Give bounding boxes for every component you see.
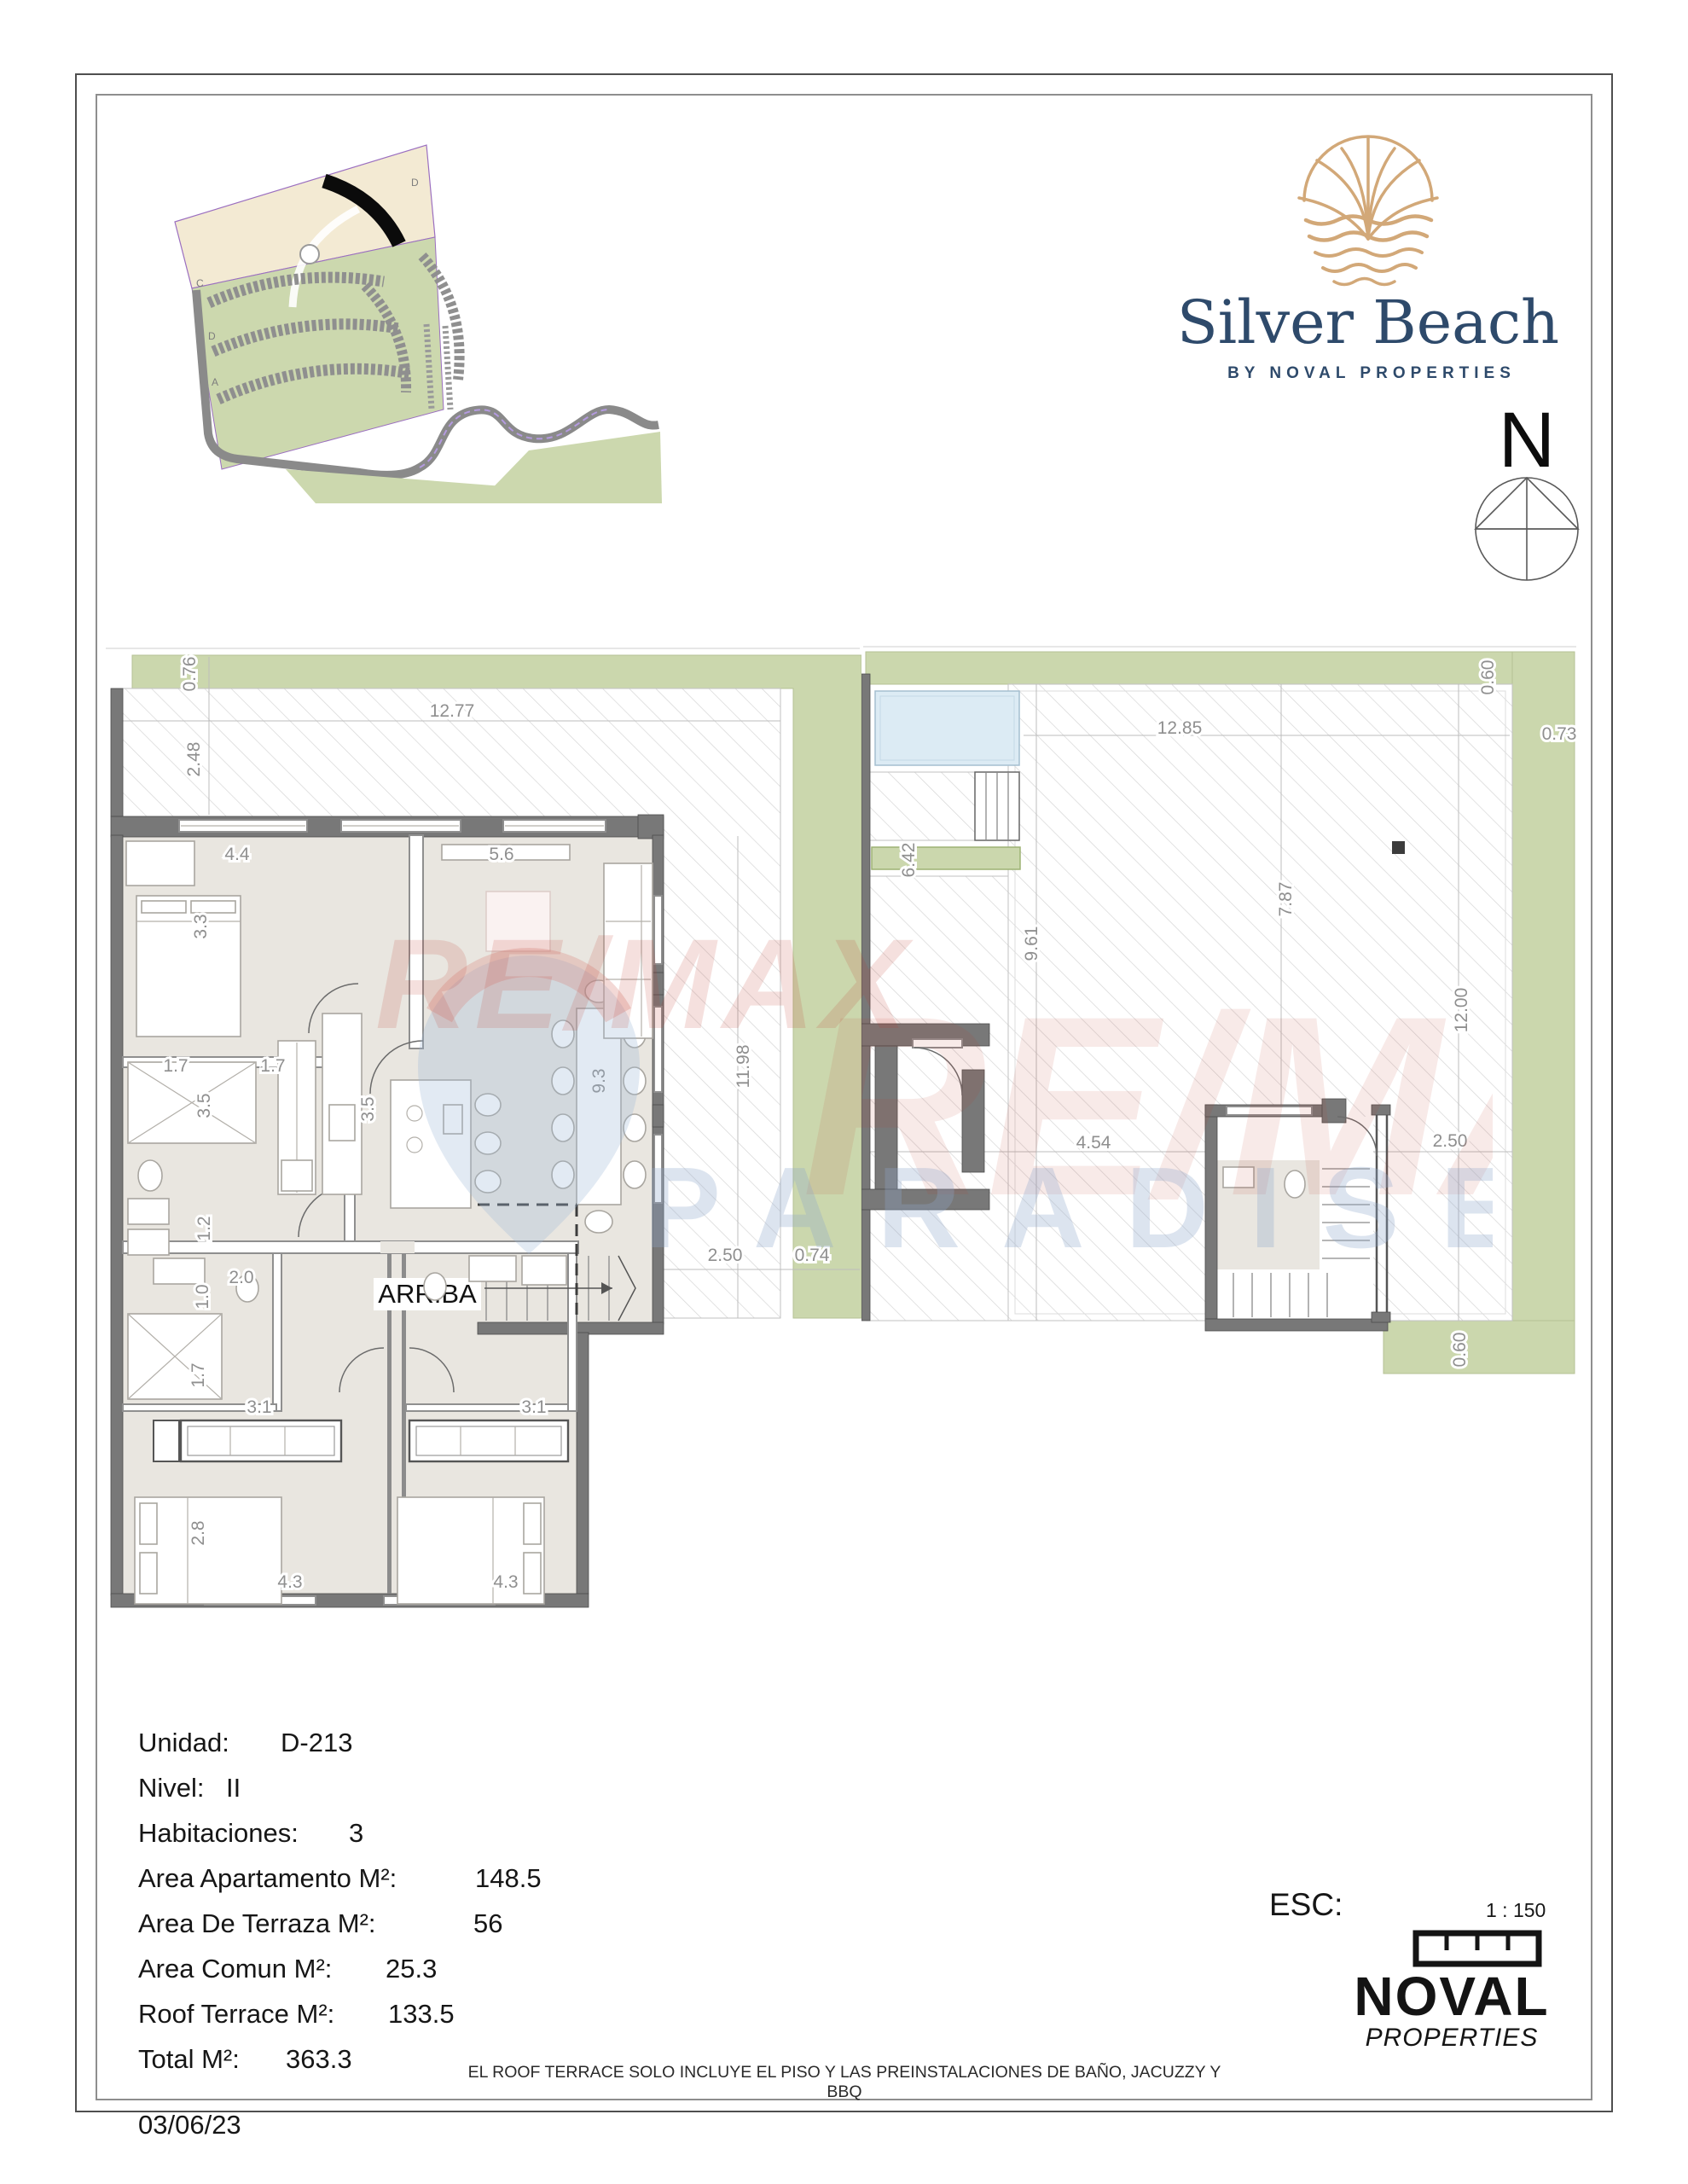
dim-12: 1.2 [194,1216,214,1240]
toilet-icon [138,1160,162,1191]
map-roundabout [300,245,319,264]
dim-43b: 4.3 [493,1572,518,1592]
dim-787: 7.87 [1276,882,1296,917]
toilet-icon [1285,1170,1305,1198]
kitchen-sink-icon [329,1105,355,1141]
unit-value: 148.5 [475,1863,542,1893]
north-arrow: N [1437,397,1616,593]
dim-060-bottom: 0.60 [1450,1333,1470,1368]
dim-17b: 1.7 [260,1056,285,1076]
dim-1198: 11.98 [734,1045,753,1089]
map-label-d-top: D [411,177,419,189]
pillow-icon [524,1553,541,1594]
dim-250r: 2.50 [1433,1131,1468,1151]
unit-label: Area De Terraza M²: [138,1901,473,1946]
coffee-table [486,892,550,951]
unit-label: Area Comun M²: [138,1946,386,1991]
unit-row: Unidad:D-213 [138,1720,542,1765]
brand-tagline: BY NOVAL PROPERTIES [1227,364,1516,382]
dim-073: 0.73 [1542,724,1577,744]
noval-wordmark: NOVAL [1354,1966,1549,2027]
dim-31a: 3.1 [247,1397,271,1417]
sink-icon [154,1258,205,1284]
bed [397,1497,544,1604]
sink-icon [128,1199,169,1224]
dim-10: 1.0 [193,1284,212,1309]
dim-454: 4.54 [1076,1133,1111,1153]
ruler-icon [1416,1933,1539,1964]
unit-label: Total M²: [138,2036,286,2082]
unit-value: II [226,1773,241,1803]
unit-value: D-213 [281,1728,352,1757]
dim-93: 9.3 [589,1068,609,1093]
floor-plan-sheet: { "brand": {"name": "Silver Beach", "tag… [0,0,1688,2184]
dim-20: 2.0 [229,1268,253,1287]
properties-wordmark: PROPERTIES [1366,2024,1539,2052]
pillow-icon [524,1503,541,1544]
unit-row: Area De Terraza M²:56 [138,1901,542,1946]
dim-35b: 3.5 [358,1096,378,1121]
sink-icon [469,1256,516,1281]
planter [872,847,1020,869]
dim-642: 6.42 [899,843,919,878]
unit-row: Nivel:II [138,1765,542,1810]
dim-33: 3.3 [191,914,211,938]
unit-row: Habitaciones:3 [138,1810,542,1856]
hatched-roof-floor [867,684,1512,1321]
dim-44: 4.4 [224,845,250,864]
dim-250: 2.50 [708,1246,743,1265]
unit-value: 133.5 [388,1999,455,2029]
unit-value: 25.3 [386,1954,437,1984]
unit-label: Unidad: [138,1720,281,1765]
unit-row: Roof Terrace M²:133.5 [138,1991,542,2036]
apartment-floor-plan: ARRIBA 0.76 12.77 2.48 4.4 5.6 3.3 [102,640,861,1612]
dim-28: 2.8 [189,1520,208,1545]
map-green-blob-right [478,432,662,503]
sofa [604,863,653,1038]
dim-31b: 3.1 [521,1397,546,1417]
palm-waves-icon [1299,136,1437,285]
dim-17a: 1.7 [163,1056,188,1076]
unit-label: Habitaciones: [138,1810,349,1856]
dim-1285: 12.85 [1157,718,1203,738]
roof-column-marker [1392,841,1405,854]
scale-value: 1 : 150 [1486,1899,1546,1922]
pillow-icon [140,1503,157,1544]
bed [136,896,241,1037]
unit-label: Roof Terrace M²: [138,1991,388,2036]
map-label-a: A [212,376,218,388]
dim-1200: 12.00 [1452,988,1471,1033]
sink-icon [1223,1167,1254,1188]
roof-stair-enclosure [1205,1099,1390,1331]
north-label: N [1499,397,1555,484]
disclaimer-note: EL ROOF TERRACE SOLO INCLUYE EL PISO Y L… [461,2063,1228,2102]
stool-icon [475,1170,501,1193]
dim-248: 2.48 [184,742,204,777]
pillow-icon [140,1553,157,1594]
dim-56: 5.6 [489,845,513,864]
dim-1277: 12.77 [430,701,475,721]
dim-961: 9.61 [1022,926,1041,961]
island [391,1080,471,1208]
oven-icon [281,1160,312,1191]
roof-terrace-plan: 0.60 12.85 0.73 6.42 9.61 7.87 12.00 2.5… [861,640,1578,1382]
stool-icon [475,1132,501,1154]
unit-value: 3 [349,1818,363,1848]
scale-label: ESC: [1269,1887,1343,1923]
left-wall [861,674,870,1321]
dim-43a: 4.3 [277,1572,302,1592]
dim-060-top: 0.60 [1478,660,1498,695]
map-label-c: C [196,277,204,289]
brand-name: Silver Beach [1177,288,1559,357]
jacuzzi-pool [875,691,1019,765]
toilet-icon [424,1273,446,1300]
site-masterplan-map: C D A D [145,128,665,503]
map-label-d-mid: D [208,330,216,342]
plan-date: 03/06/23 [138,2102,542,2147]
compass-icon [1476,478,1578,580]
unit-row: Area Comun M²:25.3 [138,1946,542,1991]
unit-value: 56 [473,1908,502,1938]
dim-076: 0.76 [180,657,200,692]
noval-properties-logo: NOVAL PROPERTIES [1341,1926,1563,2054]
unit-label: Area Apartamento M²: [138,1856,475,1901]
pillow-icon [142,901,186,913]
stool-icon [475,1094,501,1116]
wardrobe [126,841,194,886]
dim-17c: 1.7 [189,1362,208,1387]
dim-074: 0.74 [795,1246,830,1265]
vanity [522,1256,566,1285]
pillow-icon [191,901,235,913]
brand-logo-block: Silver Beach BY NOVAL PROPERTIES [1134,119,1612,401]
roof-stairs-top [975,772,1019,840]
unit-value: 363.3 [286,2044,352,2074]
sink-icon [128,1229,169,1255]
unit-row: Area Apartamento M²:148.5 [138,1856,542,1901]
unit-label: Nivel: [138,1765,226,1810]
dim-35a: 3.5 [194,1093,214,1118]
